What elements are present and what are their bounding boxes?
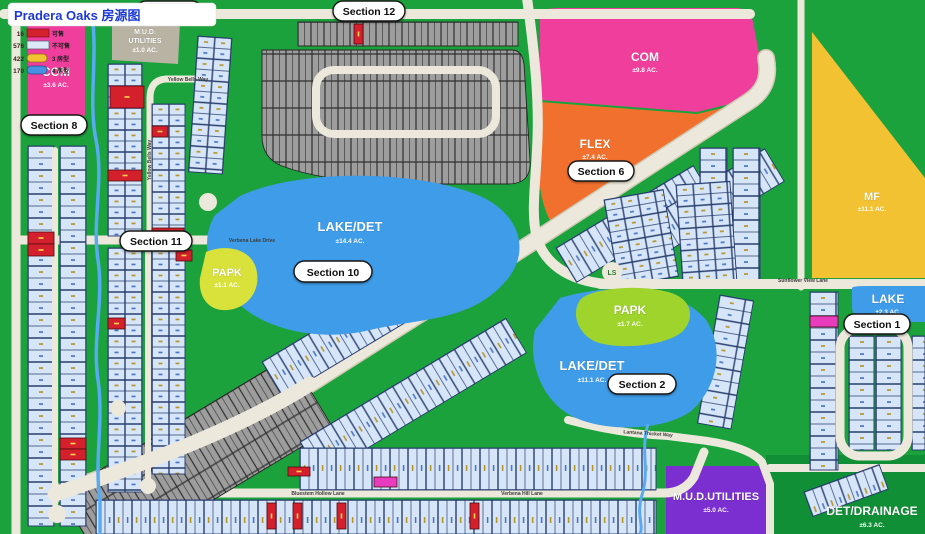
page-title: Pradera Oaks 房源图	[14, 8, 140, 23]
street-bluestem: Bluestem Hollow Lane	[291, 491, 345, 497]
lot-number-mark	[123, 175, 128, 177]
lot-number-mark	[158, 131, 163, 133]
legend-swatch-blue	[27, 66, 47, 74]
lake-det-east-label: LAKE/DET	[560, 358, 625, 373]
park-west-label: PAPK	[212, 267, 242, 279]
svg-text:16: 16	[17, 31, 25, 38]
pradera-oaks-map-page: COM ±3.6 AC. M.U.D. UTILITIES ±1.0 AC. C…	[0, 0, 925, 534]
svg-text:Section 12: Section 12	[343, 6, 396, 18]
cul-de-sac	[199, 193, 217, 211]
site-map: COM ±3.6 AC. M.U.D. UTILITIES ±1.0 AC. C…	[0, 0, 925, 534]
lot-block[interactable]	[152, 104, 185, 238]
det-drainage-acres: ±6.3 AC.	[859, 522, 885, 529]
cul-de-sac	[48, 505, 66, 523]
highlight-lot[interactable]	[810, 316, 838, 327]
lake-east-label: LAKE	[872, 292, 905, 306]
lot-number-mark	[71, 443, 76, 445]
lot-number-mark	[39, 237, 44, 239]
svg-text:3 房型: 3 房型	[52, 55, 69, 63]
section-6-pill[interactable]: Section 6	[568, 161, 634, 181]
lot-number-mark	[341, 514, 343, 519]
svg-text:Section 6: Section 6	[578, 166, 625, 178]
lot-number-mark	[474, 514, 476, 519]
mud-north-l2: UTILITIES	[128, 38, 161, 45]
lot-number-mark	[182, 255, 187, 257]
mud-north-l1: M.U.D.	[134, 29, 156, 36]
lake-det-east-acres: ±11.1 AC.	[578, 377, 607, 384]
section-10-pill[interactable]: Section 10	[294, 261, 372, 282]
lot-number-mark	[114, 323, 119, 325]
lot-number-mark	[271, 514, 273, 519]
svg-text:Section 8: Section 8	[31, 120, 78, 132]
lot-block[interactable]	[96, 500, 656, 534]
svg-text:Section 11: Section 11	[130, 236, 182, 248]
mf-acres: ±11.1 AC.	[858, 206, 887, 213]
lift-station-label: LS	[608, 270, 617, 277]
mf-label: MF	[864, 191, 880, 203]
svg-text:Section 1: Section 1	[854, 319, 901, 331]
com-east-acres: ±9.8 AC.	[632, 67, 658, 74]
lot-block[interactable]	[912, 336, 925, 450]
mud-south-label: M.U.D.UTILITIES	[673, 491, 759, 503]
lot-number-mark	[39, 249, 44, 251]
svg-text:4 房型: 4 房型	[52, 67, 69, 75]
section-1-pill[interactable]: Section 1	[844, 314, 910, 334]
park-east-acres: ±1.7 AC.	[617, 321, 643, 328]
mud-south-acres: ±5.0 AC.	[703, 507, 729, 514]
lot-block[interactable]	[300, 448, 656, 490]
det-drainage-label: DET/DRAINAGE	[826, 504, 917, 518]
lot-block[interactable]	[876, 336, 901, 450]
svg-text:576: 576	[13, 43, 24, 50]
lake-det-west-label: LAKE/DET	[318, 219, 383, 234]
park-west-acres: ±1.1 AC.	[214, 282, 240, 289]
lot-number-mark	[297, 471, 302, 473]
svg-text:Section 10: Section 10	[307, 267, 360, 279]
lot-block[interactable]	[733, 148, 760, 284]
flex-label: FLEX	[580, 137, 611, 151]
cul-de-sac	[140, 478, 156, 494]
lot-block[interactable]	[152, 248, 185, 474]
flex-acres: ±7.4 AC.	[582, 154, 608, 161]
svg-text:可售: 可售	[52, 30, 64, 38]
lot-number-mark	[297, 514, 299, 519]
park-east-label: PAPK	[614, 303, 647, 317]
street-yellow-bells-v: Yellow Bells Way	[147, 140, 153, 181]
street-sunflower: Sunflower View Lane	[778, 278, 828, 284]
street-verbena-hill: Verbena Hill Lane	[501, 491, 543, 497]
section-8-pill[interactable]: Section 8	[21, 115, 87, 135]
section-12-pill[interactable]: Section 12	[333, 1, 405, 21]
highlight-lot[interactable]	[374, 477, 397, 487]
cul-de-sac	[110, 400, 126, 416]
gray-lot-block[interactable]	[298, 22, 518, 46]
legend-swatch-red	[27, 29, 49, 37]
section-2-pill[interactable]: Section 2	[608, 374, 676, 394]
legend-swatch-yellow	[27, 54, 47, 62]
lot-block[interactable]	[28, 146, 54, 526]
street-yellow-bells: Yellow Bells Way	[168, 77, 209, 83]
lot-number-mark	[358, 32, 360, 37]
legend-swatch-lot	[27, 41, 49, 49]
mud-north-acres: ±1.0 AC.	[132, 47, 158, 54]
svg-text:170: 170	[13, 68, 24, 75]
svg-text:Section 2: Section 2	[619, 379, 666, 391]
lake-det-west-acres: ±14.4 AC.	[336, 238, 365, 245]
section-11-pill[interactable]: Section 11	[120, 231, 192, 251]
lot-block[interactable]	[60, 146, 86, 526]
svg-text:不可售: 不可售	[52, 42, 70, 50]
street-verbena-lake: Verbena Lake Drive	[229, 238, 275, 244]
lot-block[interactable]	[108, 248, 142, 492]
com-east-label: COM	[631, 50, 659, 64]
lot-number-mark	[71, 454, 76, 456]
lot-number-mark	[125, 96, 130, 98]
lot-block[interactable]	[849, 336, 874, 450]
lot-block[interactable]	[676, 181, 737, 287]
com-west-acres: ±3.6 AC.	[43, 82, 69, 89]
map-title: Pradera Oaks 房源图	[8, 3, 216, 26]
svg-text:422: 422	[13, 56, 24, 63]
